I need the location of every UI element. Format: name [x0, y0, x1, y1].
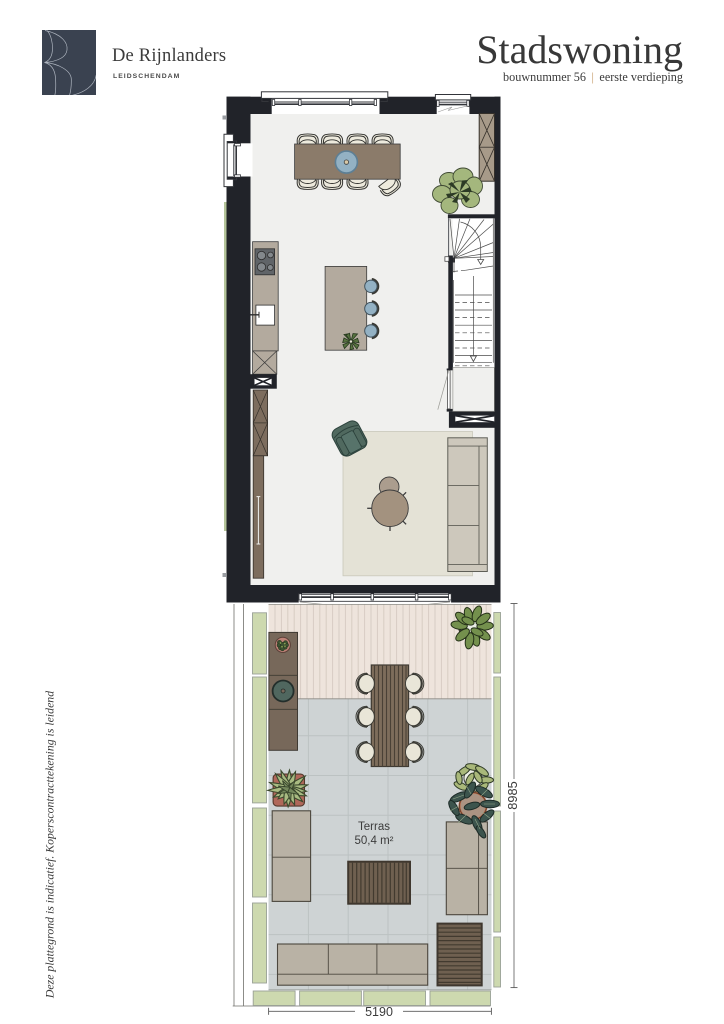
svg-text:5190: 5190	[365, 1005, 393, 1019]
svg-text:8985: 8985	[505, 781, 520, 809]
svg-text:Terras: Terras	[358, 821, 390, 833]
svg-text:50,4 m²: 50,4 m²	[355, 835, 394, 847]
